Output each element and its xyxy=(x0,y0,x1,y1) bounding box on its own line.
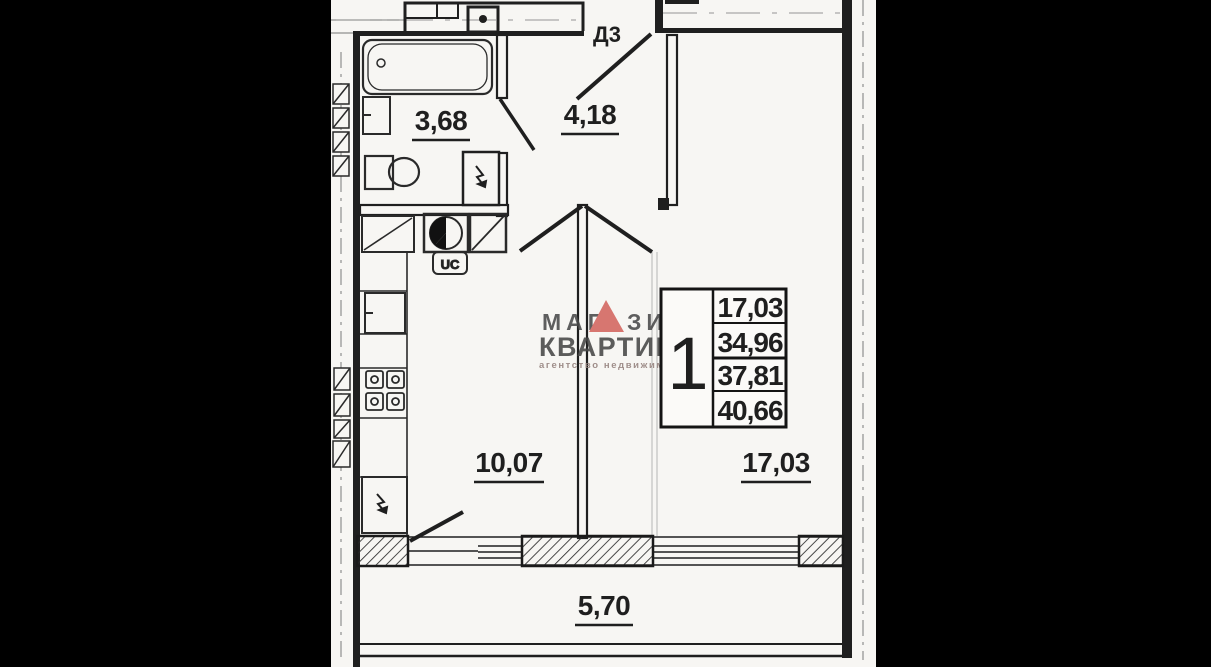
electrical-panel xyxy=(463,152,499,205)
watermark-text-kvartir: КВАРТИР xyxy=(539,332,675,362)
left-wall xyxy=(353,31,360,667)
svg-text:4,18: 4,18 xyxy=(564,99,617,130)
hallway-label: 4,18 xyxy=(561,99,619,134)
uc-label: UC xyxy=(441,257,460,272)
svg-text:5,70: 5,70 xyxy=(578,590,631,621)
stamp-living-area: 17,03 xyxy=(717,292,782,323)
svg-text:3,68: 3,68 xyxy=(415,105,468,136)
stamp-total-area: 40,66 xyxy=(717,395,782,426)
area-stamp: 1 17,03 34,96 37,81 40,66 xyxy=(661,289,786,427)
balcony-label: 5,70 xyxy=(575,590,633,625)
vent-box xyxy=(334,420,350,438)
left-black-mask xyxy=(0,0,331,667)
vent-box xyxy=(333,132,349,152)
top-wall-right-jamb xyxy=(655,0,663,31)
screenshot-root: UC xyxy=(0,0,1211,667)
vent-box xyxy=(333,84,349,104)
wall-dot xyxy=(479,15,487,23)
wall-pier xyxy=(799,536,843,566)
vent-box xyxy=(333,108,349,128)
stamp-rooms-count: 1 xyxy=(667,322,708,405)
vent-box xyxy=(334,394,350,416)
vent-box xyxy=(334,368,350,390)
top-edge-mark xyxy=(665,0,699,4)
entrance-door-label: Д3 xyxy=(593,22,621,47)
svg-text:10,07: 10,07 xyxy=(475,447,543,478)
bathroom-label: 3,68 xyxy=(412,105,470,140)
stamp-area-3: 37,81 xyxy=(717,360,782,391)
top-wall-right-bottom-edge xyxy=(655,28,845,33)
svg-text:17,03: 17,03 xyxy=(742,447,810,478)
kitchen-label: 10,07 xyxy=(474,447,544,482)
living-room-label: 17,03 xyxy=(741,447,811,482)
floor-plan-svg: UC xyxy=(0,0,1211,667)
wall-pier xyxy=(522,536,653,566)
stamp-area-2: 34,96 xyxy=(717,327,782,358)
wall-pier xyxy=(357,536,408,566)
vent-box xyxy=(333,156,349,176)
vent-box xyxy=(333,441,350,467)
kitchen-living-partition xyxy=(578,205,587,538)
right-black-mask xyxy=(876,0,1211,667)
